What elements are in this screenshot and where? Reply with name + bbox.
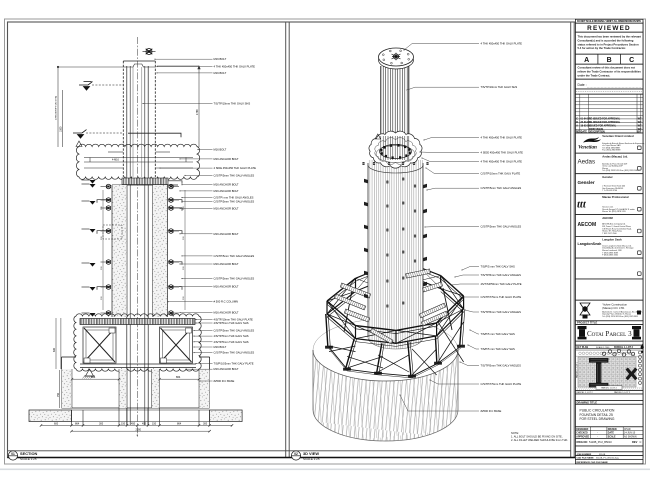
svg-text:PARCEL 1 LOT 2: PARCEL 1 LOT 2 — [601, 387, 617, 390]
svg-text:5110B_PC_B5010.dwg: 5110B_PC_B5010.dwg — [596, 458, 619, 460]
svg-text:Consultant(s) and is accorded: Consultant(s) and is accorded the follow… — [578, 38, 634, 42]
svg-text:CHECKED: CHECKED — [576, 433, 588, 435]
svg-text:AECOM: AECOM — [602, 216, 613, 220]
svg-text:Aedas (Macau) Ltd.: Aedas (Macau) Ltd. — [602, 154, 628, 158]
svg-text:CHAD: CHAD — [624, 428, 631, 431]
svg-text:C: C — [640, 440, 642, 444]
svg-text:DATE: DATE — [608, 432, 615, 435]
svg-text:M16 ANCHOR BOLT: M16 ANCHOR BOLT — [214, 189, 239, 193]
svg-text:1788: 1788 — [196, 109, 199, 115]
svg-text:1500: 1500 — [60, 126, 63, 132]
svg-text:4 THK 450x450 THK GALV PLATE: 4 THK 450x450 THK GALV PLATE — [481, 42, 523, 46]
svg-text:C/S/TP/5mm THK GALV ANGLES: C/S/TP/5mm THK GALV ANGLES — [214, 351, 255, 355]
svg-text:864: 864 — [91, 375, 96, 379]
svg-text:FOR STEEL DRAWING: FOR STEEL DRAWING — [580, 417, 615, 421]
svg-text:T/S/P/5 mm THK GALV SHS: T/S/P/5 mm THK GALV SHS — [481, 332, 515, 336]
svg-text:M16 ANCHOR BOLT: M16 ANCHOR BOLT — [214, 367, 239, 371]
svg-text:SECTION: SECTION — [20, 451, 37, 456]
svg-text:Fax: (853) 2882 8889: Fax: (853) 2882 8889 — [602, 150, 620, 152]
svg-text:T/S/TP/5mm THK GALV ANGLES: T/S/TP/5mm THK GALV ANGLES — [481, 364, 522, 368]
svg-text:AECOM: AECOM — [578, 222, 597, 228]
svg-text:status referred to in Project: status referred to in Project Procedures… — [578, 42, 639, 46]
svg-text:C/S/TP/10mm THK GALV PLATE: C/S/TP/10mm THK GALV PLATE — [481, 171, 521, 175]
svg-text:T/S/P/5 mm THK GALV SHS: T/S/P/5 mm THK GALV SHS — [481, 265, 515, 269]
svg-text:2. ALL FILLET WELDED SHOULD BE: 2. ALL FILLET WELDED SHOULD BE 3mm THK. — [511, 438, 568, 442]
svg-text:750: 750 — [57, 392, 60, 397]
svg-text:Aedas: Aedas — [578, 159, 596, 166]
svg-text:01: 01 — [11, 452, 15, 456]
svg-text:C: C — [629, 57, 634, 64]
svg-text:JOB NUMBER: JOB NUMBER — [577, 454, 592, 456]
svg-text:C/S/TP/5mm THK GALV ANGLES: C/S/TP/5mm THK GALV ANGLES — [481, 225, 522, 229]
svg-text:Macau Tel: (853) 2878 9119: Macau Tel: (853) 2878 9119 — [602, 211, 625, 213]
svg-text:1788 (VERIFY ON SITE): 1788 (VERIFY ON SITE) — [56, 96, 58, 120]
svg-text:M16 BOLT: M16 BOLT — [214, 57, 227, 61]
svg-text:M16 ANCHOR BOLT: M16 ANCHOR BOLT — [214, 232, 239, 236]
svg-text:NOTE:: NOTE: — [511, 431, 519, 435]
svg-text:T/S/TP/10mm THK GALV SHS: T/S/TP/10mm THK GALV SHS — [481, 85, 518, 89]
svg-text:14-JUN-10: 14-JUN-10 — [624, 433, 636, 435]
svg-text:Tel: (853) 2870 3813 Fax: (85: Tel: (853) 2870 3813 Fax: (853) 2870 381… — [602, 316, 638, 318]
svg-text:600: 600 — [54, 423, 59, 426]
svg-text:M16 ANCHOR BOLT: M16 ANCHOR BOLT — [214, 183, 239, 187]
svg-text:REV: REV — [632, 440, 638, 444]
svg-text:4/S/TP/5mm THK GALV SHS: 4/S/TP/5mm THK GALV SHS — [214, 340, 249, 344]
svg-text:WT: WT — [638, 119, 642, 121]
svg-text:# 500 R.C COLUMN: # 500 R.C COLUMN — [214, 300, 239, 304]
svg-text:DRAWING TITLE: DRAWING TITLE — [577, 400, 598, 404]
svg-text:5110B_PC2_B5010: 5110B_PC2_B5010 — [589, 440, 612, 444]
svg-text:DESIGNED: DESIGNED — [576, 429, 588, 431]
svg-text:T/S/TP/10mm THK GALV SHS: T/S/TP/10mm THK GALV SHS — [214, 102, 251, 106]
svg-text:#2500 R.C BASE: #2500 R.C BASE — [481, 409, 502, 413]
svg-text:Tel: (853) 2833 1055 Fax: (85: Tel: (853) 2833 1055 Fax: (853) 2833 106… — [602, 170, 638, 172]
svg-text:M16 BOLT: M16 BOLT — [214, 148, 227, 152]
svg-text:LangdonSeah: LangdonSeah — [578, 242, 602, 246]
svg-text:WT: WT — [638, 122, 642, 124]
svg-text:RE-ISSUED FOR APPROVAL: RE-ISSUED FOR APPROVAL — [589, 118, 621, 121]
svg-text:300: 300 — [99, 423, 104, 426]
svg-text:PARCEL 1, LOT 1: PARCEL 1, LOT 1 — [576, 361, 579, 378]
svg-text:4-M16: 4-M16 — [112, 159, 119, 162]
svg-text:C/S/TP/5mm THK GALV ANGLES: C/S/TP/5mm THK GALV ANGLES — [214, 277, 255, 281]
svg-text:4 SIDE 450x450 THK GALV PLATE: 4 SIDE 450x450 THK GALV PLATE — [481, 150, 524, 154]
svg-text:T 852 2317 7600: T 852 2317 7600 — [602, 233, 616, 235]
svg-text:864: 864 — [75, 423, 80, 426]
svg-text:T/S/TP/5mm THK GALV ANGLES: T/S/TP/5mm THK GALV ANGLES — [481, 310, 522, 314]
svg-text:Macau Professional: Macau Professional — [602, 195, 628, 199]
svg-text:C/S/TP/ mm THK GALV ANGLES: C/S/TP/ mm THK GALV ANGLES — [214, 196, 254, 200]
svg-text:4 THK 450x450 THK GALV PLATE: 4 THK 450x450 THK GALV PLATE — [214, 65, 256, 69]
svg-text:C/S/TP/5mm THK GALV ANGLES: C/S/TP/5mm THK GALV ANGLES — [481, 186, 522, 190]
svg-text:4 THK 450x450 THK GALV PLATE: 4 THK 450x450 THK GALV PLATE — [481, 160, 523, 164]
svg-text:A: A — [584, 57, 589, 64]
svg-text:DO NOT SCALE DRAWING. VERIFY A: DO NOT SCALE DRAWING. VERIFY ALL DIMENSI… — [577, 20, 641, 23]
svg-text:450: 450 — [142, 423, 147, 426]
svg-text:Venetian Orient Limited: Venetian Orient Limited — [602, 134, 634, 138]
svg-text:CAD FILE NAME: CAD FILE NAME — [577, 457, 595, 460]
svg-text:Date :: Date : — [578, 83, 587, 87]
svg-text:C/S/TP/T/5mm THK GALV PLATE: C/S/TP/T/5mm THK GALV PLATE — [481, 382, 522, 386]
svg-text:150: 150 — [121, 423, 126, 426]
svg-text:2050: 2050 — [136, 428, 142, 431]
svg-text:C/S/TP/5mm THK GALV ANGLES: C/S/TP/5mm THK GALV ANGLES — [214, 199, 255, 203]
svg-text:Langdon Seah: Langdon Seah — [602, 238, 622, 242]
svg-text:This document has been reviewe: This document has been reviewed by the r… — [578, 35, 642, 39]
svg-text:SCALE 1:25: SCALE 1:25 — [20, 457, 37, 461]
svg-text:T 1.415.433.3700: T 1.415.433.3700 — [602, 190, 617, 192]
svg-text:DWG NO: DWG NO — [577, 440, 588, 444]
svg-text:4/S/TP/5mm THK GALV SHS: 4/S/TP/5mm THK GALV SHS — [214, 321, 249, 325]
svg-text:WT: WT — [638, 126, 642, 128]
svg-text:3D VIEW: 3D VIEW — [303, 451, 319, 456]
svg-text:REFERENCE CAD FILE NAME: REFERENCE CAD FILE NAME — [577, 461, 609, 464]
svg-text:ISSUED FOR APPROVAL: ISSUED FOR APPROVAL — [589, 125, 617, 128]
svg-text:864: 864 — [176, 375, 181, 379]
svg-text:B: B — [607, 57, 612, 64]
svg-text:4 SIDE 450x450 THK GALV PLATE: 4 SIDE 450x450 THK GALV PLATE — [214, 166, 257, 170]
svg-text:T/S/P/5 mm THK GALV SHS: T/S/P/5 mm THK GALV SHS — [481, 347, 515, 351]
svg-text:M16 ANCHOR BOLT: M16 ANCHOR BOLT — [214, 285, 239, 289]
svg-text:M16 ANCHOR BOLT: M16 ANCHOR BOLT — [214, 207, 239, 211]
svg-text:C/S/TP/5mm THK GALV ANGLES: C/S/TP/5mm THK GALV ANGLES — [214, 329, 255, 333]
svg-text:ttt: ttt — [577, 200, 587, 211]
svg-text:4S/T/SP/50mm THK GALV PLATE: 4S/T/SP/50mm THK GALV PLATE — [481, 282, 522, 286]
svg-text:M16 BOLT: M16 BOLT — [214, 345, 227, 349]
svg-text:300: 300 — [203, 423, 208, 426]
svg-text:C/S/TP/T/5mm THK GALV PLATE: C/S/TP/T/5mm THK GALV PLATE — [481, 295, 522, 299]
svg-text:4/S/TP/5mm THK GALV SHS: 4/S/TP/5mm THK GALV SHS — [214, 334, 249, 338]
svg-text:Consultant review of this docu: Consultant review of this document does … — [578, 66, 636, 70]
svg-text:02: 02 — [294, 452, 298, 456]
svg-text:PROJECT TITLE: PROJECT TITLE — [577, 321, 597, 325]
svg-text:4 THK 450x450 THK GALV PLATE: 4 THK 450x450 THK GALV PLATE — [481, 135, 523, 139]
svg-text:RE-ISSUED FOR APPROVAL: RE-ISSUED FOR APPROVAL — [589, 121, 621, 124]
svg-text:Gensler: Gensler — [602, 175, 613, 179]
svg-text:150: 150 — [152, 423, 157, 426]
svg-text:Venetian: Venetian — [578, 145, 597, 151]
svg-text:C/S/TP/5mm THK GALV ANGLES: C/S/TP/5mm THK GALV ANGLES — [214, 173, 255, 177]
svg-text:600: 600 — [53, 347, 56, 352]
svg-text:REVIEWED: REVIEWED — [587, 25, 631, 32]
svg-text:COTAI PARCEL 3: COTAI PARCEL 3 — [587, 330, 632, 338]
svg-text:450: 450 — [131, 423, 136, 426]
svg-text:M16 ANCHOR BOLT: M16 ANCHOR BOLT — [214, 157, 239, 161]
svg-text:864: 864 — [177, 423, 182, 426]
svg-text:4/S/TP/10mm THK GALV PLATE: 4/S/TP/10mm THK GALV PLATE — [214, 318, 253, 322]
svg-text:5.4 for action by the Trade Co: 5.4 for action by the Trade Contractor. — [578, 46, 627, 50]
svg-text:M16 ANCHOR BOLT: M16 ANCHOR BOLT — [214, 311, 239, 315]
svg-text:relieve the Trade Contracto: relieve the Trade Contractor of its resp… — [578, 70, 642, 74]
svg-text:C/S/TP/5mm THK GALV ANGLES: C/S/TP/5mm THK GALV ANGLES — [214, 254, 255, 258]
svg-text:5110B: 5110B — [599, 454, 606, 456]
svg-text:DRAWN: DRAWN — [608, 428, 617, 431]
svg-text:M16 ANCHOR BOLT: M16 ANCHOR BOLT — [214, 262, 239, 266]
svg-text:SCALE 1:25: SCALE 1:25 — [303, 457, 320, 461]
svg-text:F (853) 2833 3266: F (853) 2833 3266 — [602, 255, 618, 257]
svg-text:under the Trade Contract.: under the Trade Contract. — [578, 74, 611, 78]
svg-text:1. ALL BOLT SHOULD BE FIXING O: 1. ALL BOLT SHOULD BE FIXING ON SITE, — [511, 435, 563, 439]
svg-text:#2500 R.C BASE: #2500 R.C BASE — [214, 379, 235, 383]
svg-text:M16 BOLT: M16 BOLT — [214, 71, 227, 75]
svg-text:T/S/TP/5mm THK GALV ANGLES: T/S/TP/5mm THK GALV ANGLES — [481, 273, 522, 277]
svg-text:T/S/P/10/5mm THK GALV PLATE: T/S/P/10/5mm THK GALV PLATE — [214, 362, 254, 366]
svg-text:Gensler: Gensler — [578, 180, 595, 185]
svg-text:(Macau) CO. LTD.: (Macau) CO. LTD. — [602, 306, 625, 310]
